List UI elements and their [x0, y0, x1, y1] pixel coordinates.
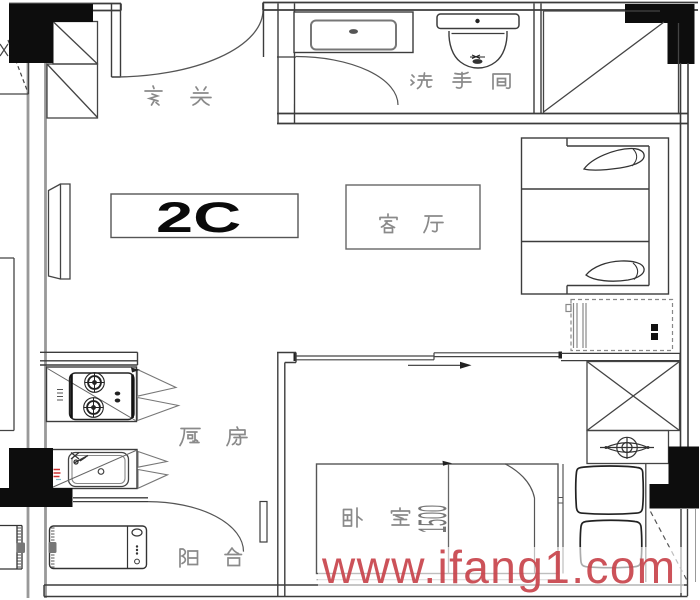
svg-text:www.ifang1.com: www.ifang1.com — [321, 541, 677, 593]
svg-text:1500: 1500 — [411, 505, 456, 533]
svg-text:2C: 2C — [156, 193, 241, 241]
